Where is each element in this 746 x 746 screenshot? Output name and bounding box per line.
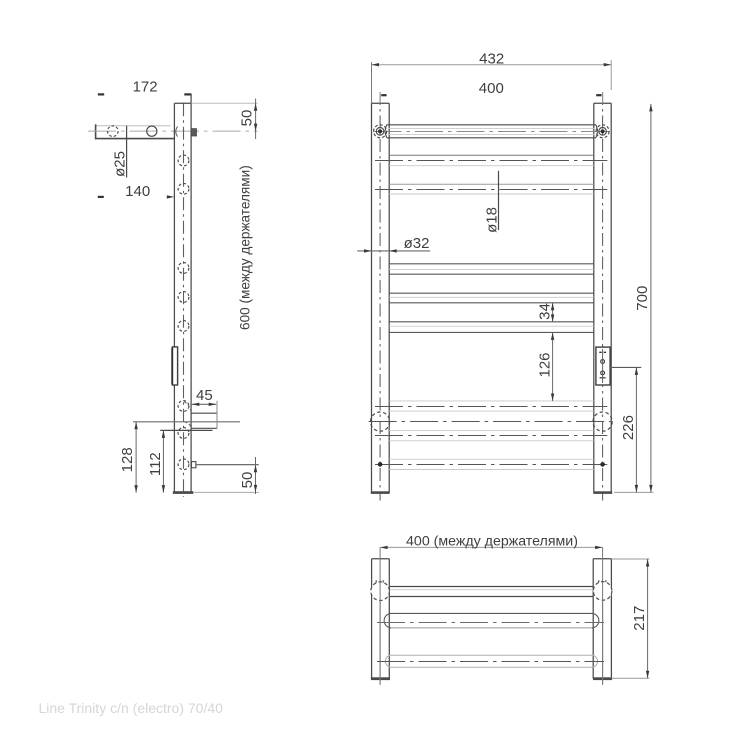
svg-text:ø32: ø32	[404, 235, 430, 252]
svg-text:126: 126	[536, 352, 553, 377]
svg-text:45: 45	[196, 387, 213, 404]
svg-text:140: 140	[125, 183, 150, 200]
svg-text:Line Trinity c/n (electro) 70/: Line Trinity c/n (electro) 70/40	[39, 700, 224, 716]
svg-text:ø25: ø25	[111, 151, 128, 177]
svg-text:432: 432	[479, 50, 504, 67]
svg-text:400: 400	[479, 80, 504, 97]
svg-text:400 (между держателями): 400 (между держателями)	[406, 533, 578, 549]
svg-text:700: 700	[634, 286, 651, 311]
svg-text:172: 172	[133, 79, 158, 96]
svg-text:128: 128	[119, 447, 136, 472]
svg-text:ø18: ø18	[483, 207, 500, 233]
svg-text:112: 112	[147, 452, 164, 476]
svg-text:34: 34	[536, 303, 553, 320]
svg-text:226: 226	[620, 415, 637, 440]
svg-text:600 (между держателями): 600 (между держателями)	[238, 165, 253, 330]
svg-text:50: 50	[239, 472, 256, 489]
svg-text:50: 50	[239, 110, 256, 127]
svg-text:217: 217	[631, 606, 648, 631]
